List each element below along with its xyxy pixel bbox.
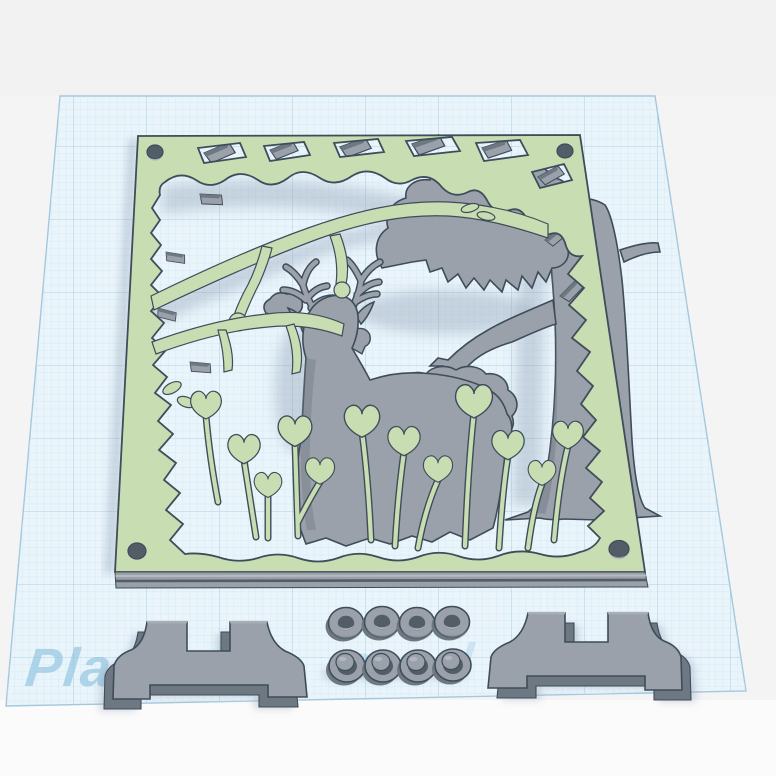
background-top xyxy=(0,0,776,96)
plaque-stack-edge xyxy=(115,572,648,588)
cad-viewport: Plan o d xyxy=(0,0,776,776)
scene-canvas: Plan o d xyxy=(0,0,776,776)
background-bottom xyxy=(0,700,776,776)
